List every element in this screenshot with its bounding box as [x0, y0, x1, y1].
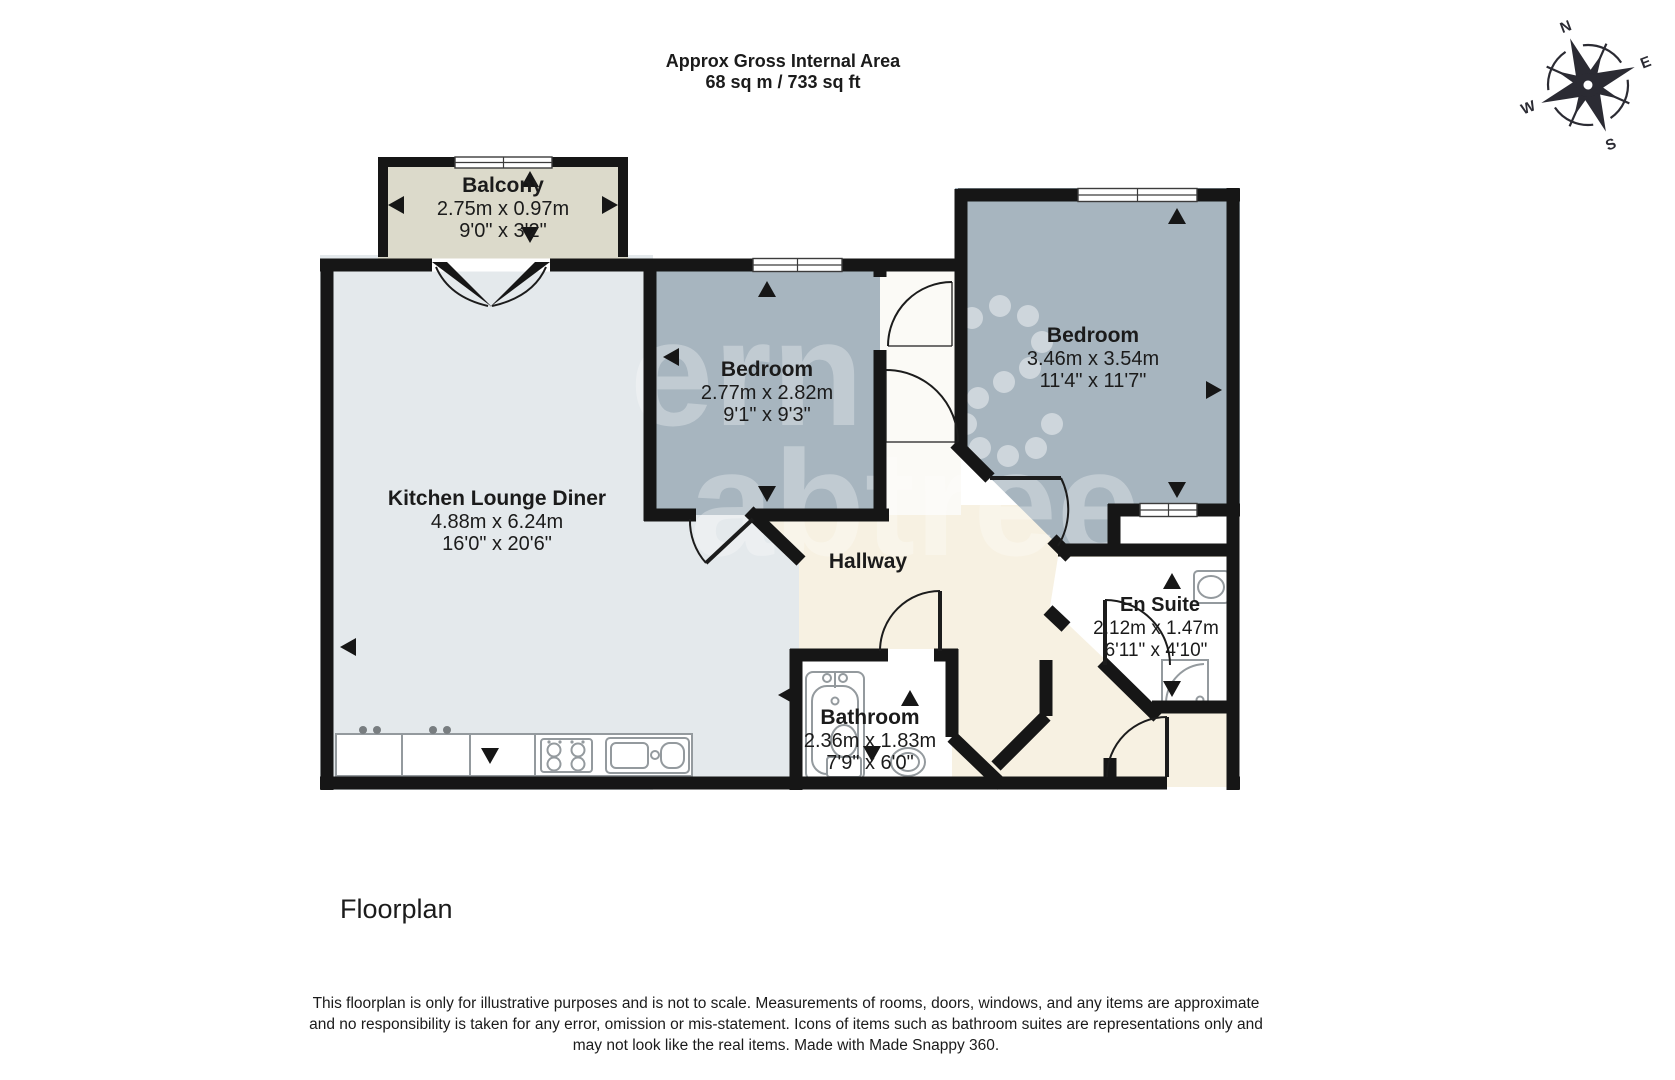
balcony-metric: 2.75m x 0.97m [437, 198, 569, 220]
bedroom2-metric: 3.46m x 3.54m [1027, 348, 1159, 370]
disclaimer-line1: This floorplan is only for illustrative … [313, 995, 1260, 1012]
compass-south-label: S [1603, 135, 1618, 154]
floorplan-page: ern abtree [0, 0, 1675, 1080]
kitchen-counter [336, 734, 692, 776]
bathroom-label: Bathroom [820, 706, 919, 729]
bedroom1-metric: 2.77m x 2.82m [701, 382, 833, 404]
bathroom-metric: 2.36m x 1.83m [804, 730, 936, 752]
compass-north-label: N [1558, 17, 1574, 37]
bedroom1-imperial: 9'1" x 9'3" [723, 404, 810, 426]
compass-west-label: W [1519, 97, 1539, 118]
kitchen-fixtures [336, 726, 692, 776]
bedroom2-window [1078, 189, 1197, 202]
balcony-imperial: 9'0" x 3'2" [459, 220, 546, 242]
compass-rose-icon: N E S W [1496, 0, 1675, 178]
ensuite-imperial: 6'11" x 4'10" [1105, 640, 1208, 661]
compass-east-label: E [1638, 53, 1653, 72]
svg-text:abtree: abtree [690, 419, 1140, 587]
area-title-line2: 68 sq m / 733 sq ft [705, 72, 860, 92]
floorplan-image: ern abtree [0, 0, 1675, 1080]
disclaimer-line2: and no responsibility is taken for any e… [309, 1016, 1263, 1033]
kitchen-imperial: 16'0" x 20'6" [442, 533, 552, 555]
hallway-label: Hallway [829, 550, 908, 573]
balcony-label: Balcony [462, 174, 544, 197]
bathroom-imperial: 7'9" x 6'0" [826, 752, 913, 774]
bedroom1-label: Bedroom [721, 358, 813, 381]
bedroom2-imperial: 11'4" x 11'7" [1040, 370, 1147, 392]
ensuite-label: En Suite [1120, 594, 1200, 616]
floorplan-caption: Floorplan [340, 894, 453, 924]
bedroom2-label: Bedroom [1047, 324, 1139, 347]
ensuite-window [1140, 504, 1197, 517]
bedroom1-window [753, 259, 842, 272]
kitchen-label: Kitchen Lounge Diner [388, 487, 606, 510]
area-title-line1: Approx Gross Internal Area [666, 51, 901, 71]
kitchen-metric: 4.88m x 6.24m [431, 511, 563, 533]
ensuite-metric: 2.12m x 1.47m [1093, 618, 1219, 639]
balcony-window [455, 157, 552, 168]
disclaimer-line3: may not look like the real items. Made w… [573, 1037, 999, 1054]
